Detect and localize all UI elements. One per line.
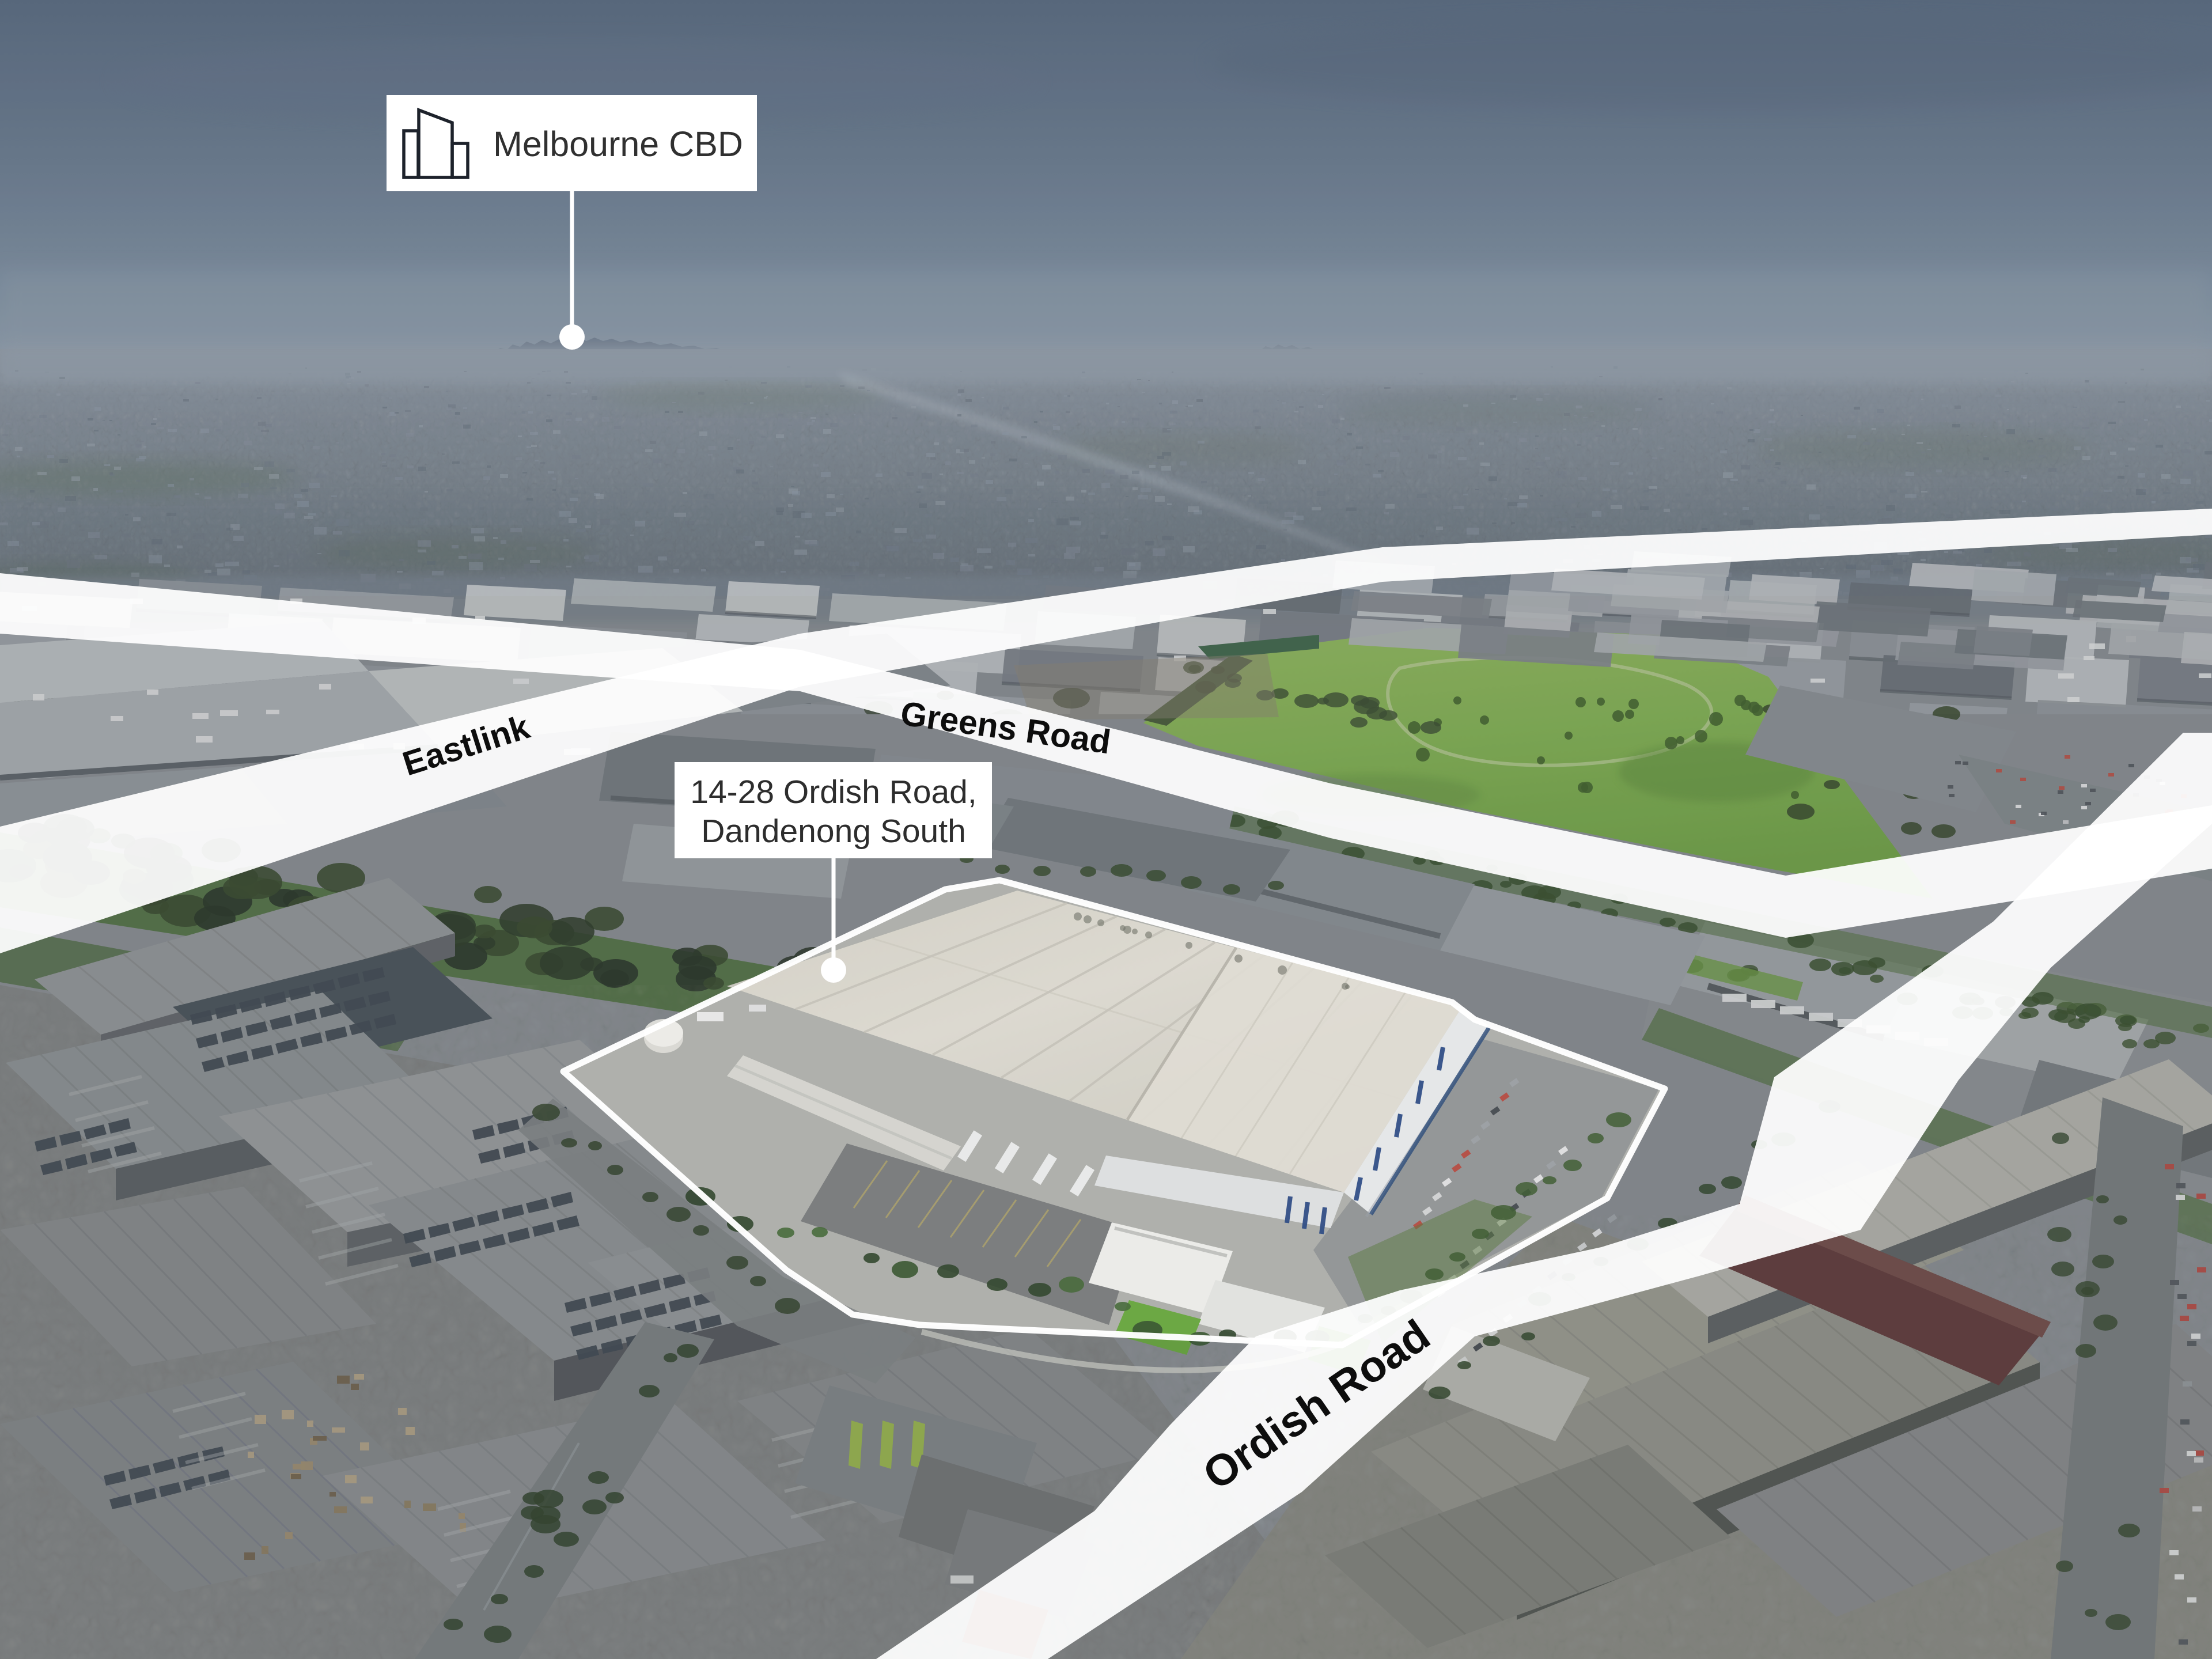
svg-text:Dandenong South: Dandenong South — [701, 813, 966, 850]
svg-text:Melbourne CBD: Melbourne CBD — [493, 124, 743, 164]
svg-text:14-28 Ordish Road,: 14-28 Ordish Road, — [690, 774, 976, 810]
